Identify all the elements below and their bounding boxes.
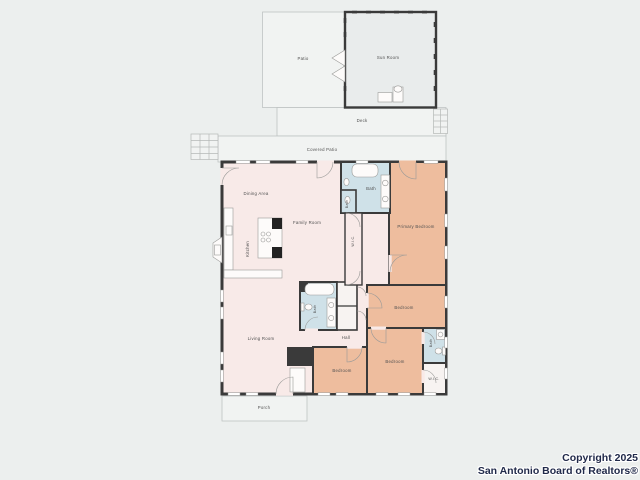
label-se-wic: W.I.C.	[428, 377, 439, 381]
label-family-room: Family Room	[293, 220, 321, 225]
bathtub	[352, 164, 378, 177]
kitchen-sink	[226, 226, 232, 235]
label-covered-patio: Covered Patio	[307, 147, 338, 152]
bathtub	[305, 284, 334, 296]
label-primary-bedroom: Primary Bedroom	[397, 224, 434, 229]
side-stairs	[191, 134, 218, 160]
label-se-bath: Bath	[429, 339, 433, 347]
toilet	[344, 178, 349, 185]
kitchen-appliance	[272, 247, 282, 258]
label-sun-room: Sun Room	[377, 55, 399, 60]
label-patio: Patio	[297, 56, 308, 61]
label-dining-area: Dining Area	[244, 191, 269, 196]
deck-stairs	[434, 109, 448, 134]
label-powder-bath: Bath	[345, 200, 349, 208]
label-primary-bath: Bath	[366, 186, 376, 191]
label-hall: Hall	[342, 335, 350, 340]
copyright-line2: San Antonio Board of Realtors®	[478, 465, 638, 477]
label-kitchen: Kitchen	[245, 241, 250, 257]
kitchen-counter	[224, 270, 282, 278]
kitchen-appliance	[272, 218, 282, 229]
wall-chunk	[287, 347, 313, 366]
kitchen-counter	[224, 208, 233, 270]
floor-plan-image: Patio Sun Room Deck Covered Patio Dining…	[0, 0, 640, 480]
label-bedroom-s: Bedroom	[332, 368, 351, 373]
bedroom-s-closet	[290, 368, 305, 392]
label-primary-wic: W.I.C.	[351, 235, 355, 246]
label-deck: Deck	[357, 118, 368, 123]
copyright-line1: Copyright 2025	[478, 452, 638, 464]
label-hall-bath: Bath	[313, 305, 317, 313]
toilet	[435, 348, 442, 354]
label-bedroom-se: Bedroom	[385, 359, 404, 364]
toilet	[305, 304, 312, 310]
floor-plan-svg: Patio Sun Room Deck Covered Patio Dining…	[0, 0, 640, 480]
copyright-watermark: Copyright 2025 San Antonio Board of Real…	[478, 452, 638, 477]
label-porch: Porch	[258, 405, 271, 410]
label-bedroom-ne: Bedroom	[394, 305, 413, 310]
label-living-room: Living Room	[248, 336, 275, 341]
vanity	[437, 330, 445, 340]
